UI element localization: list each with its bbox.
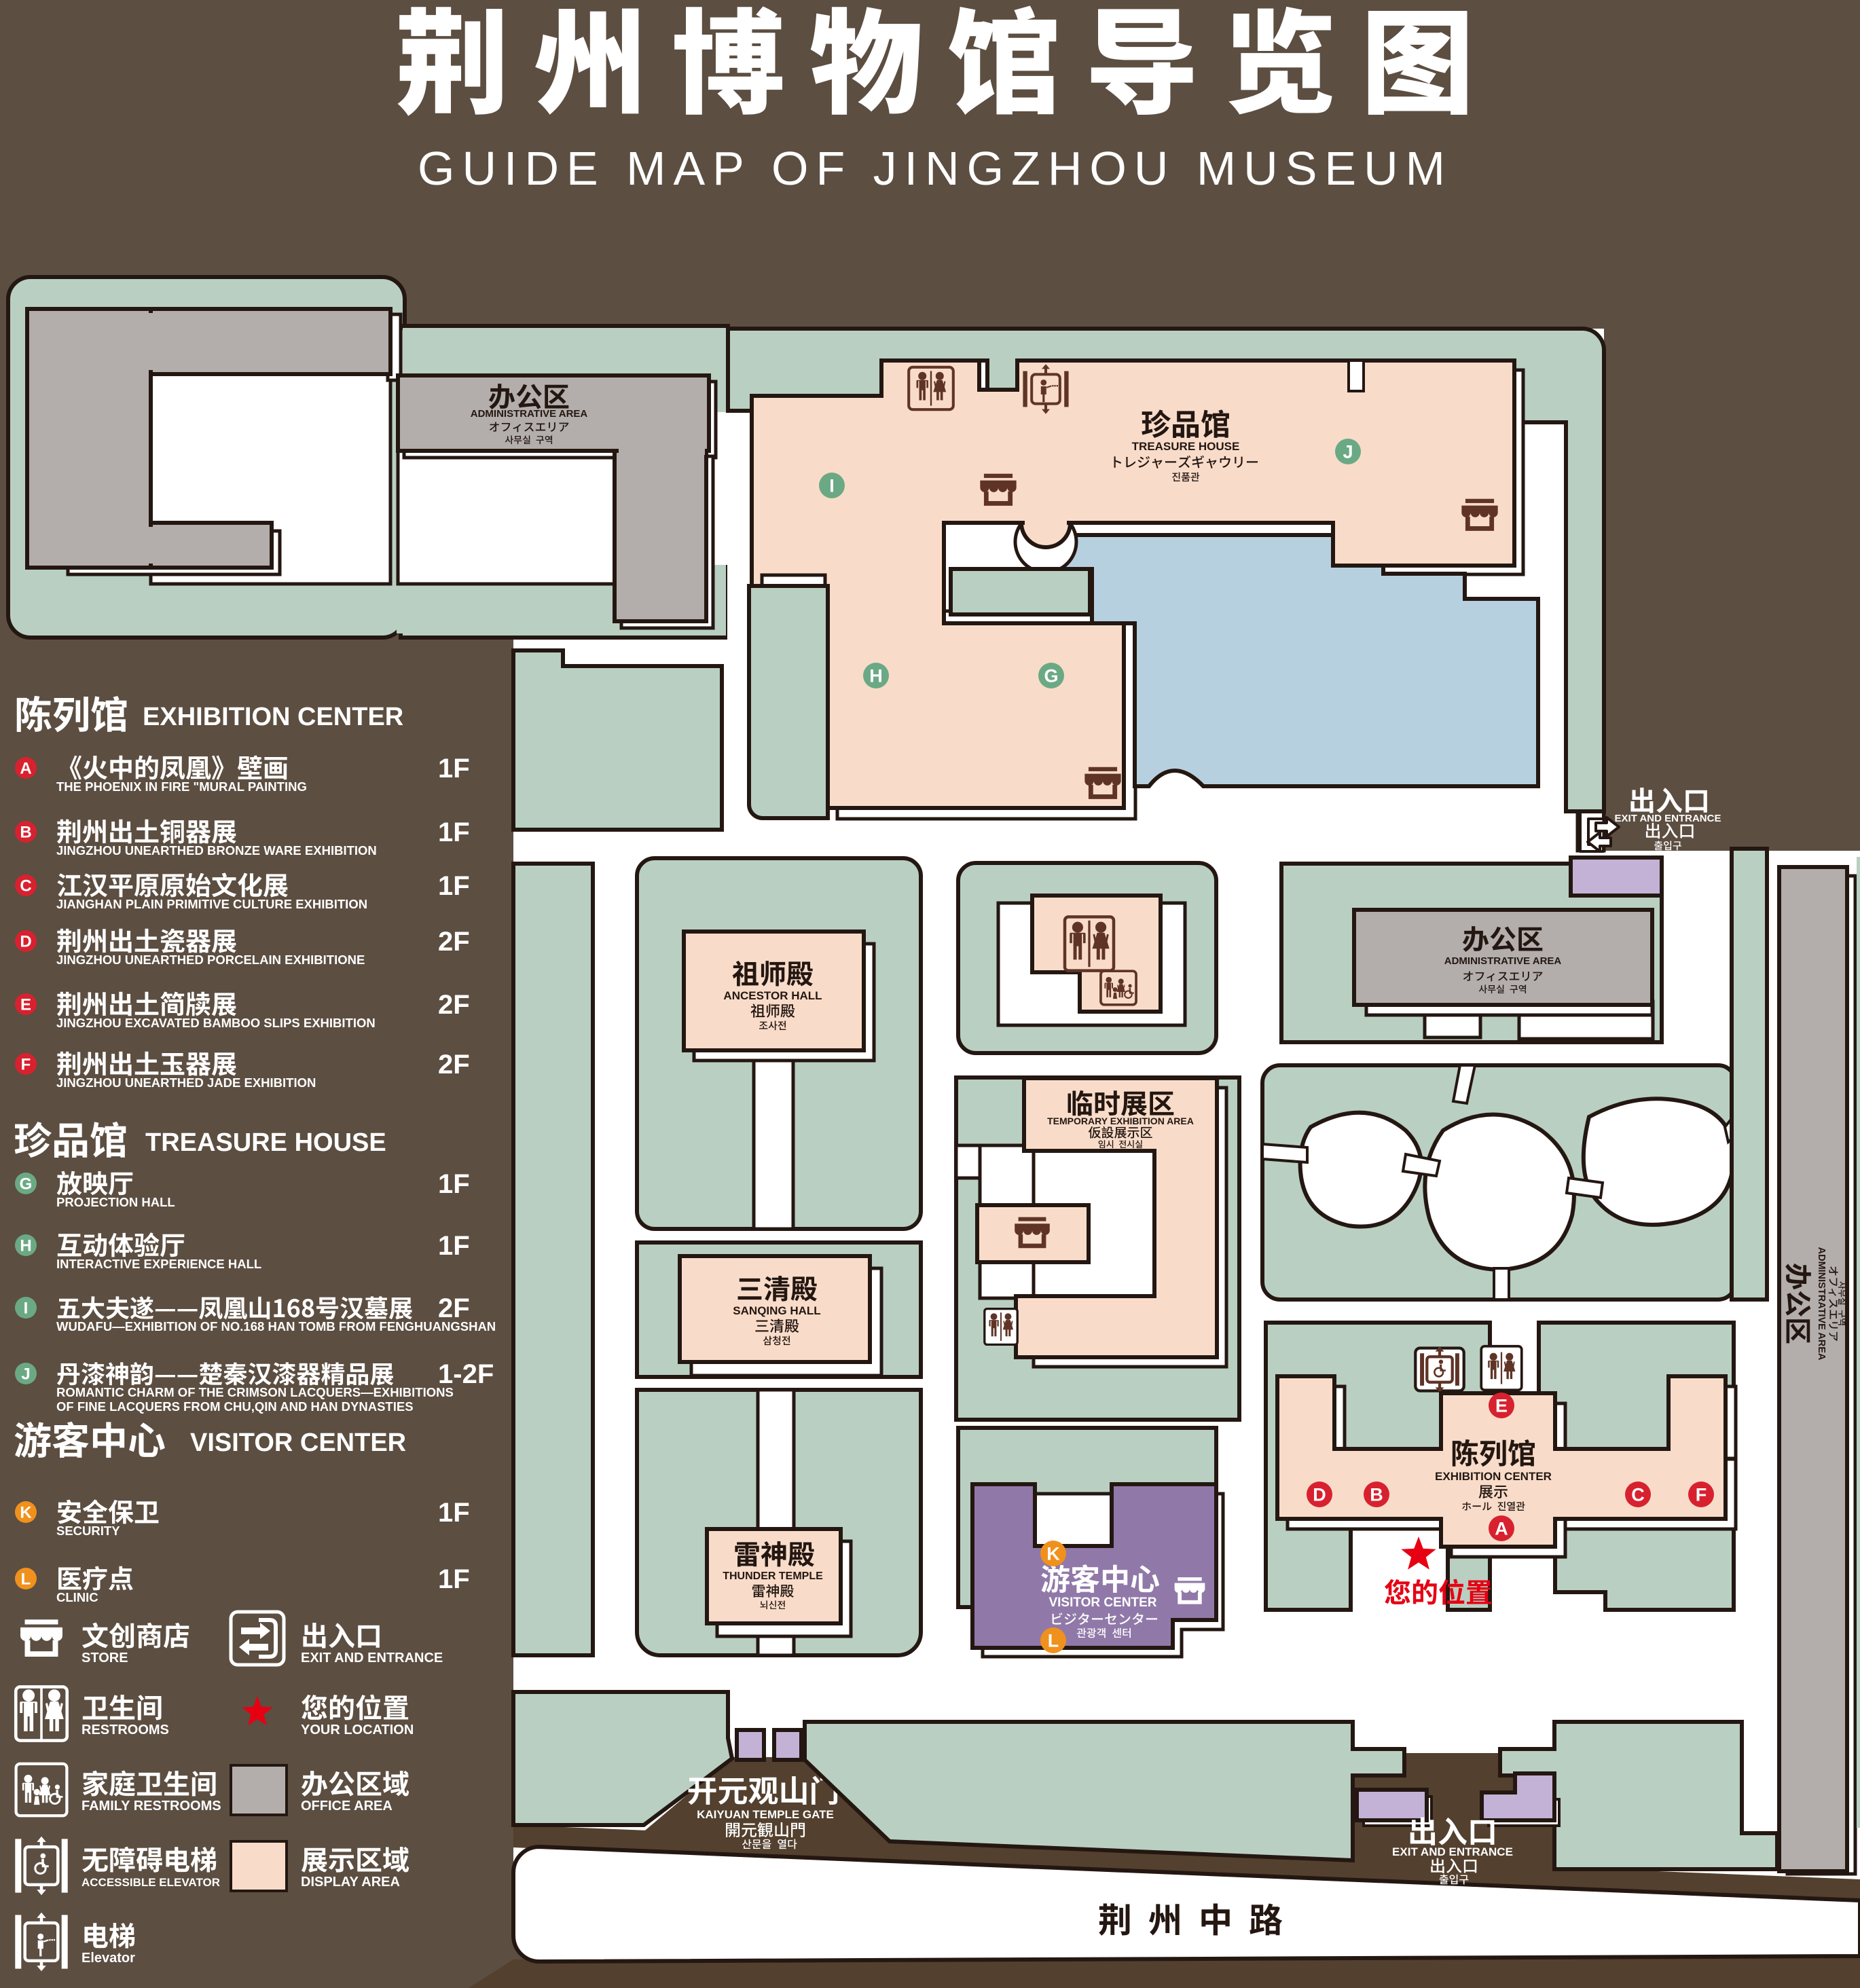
svg-text:WUDAFU—EXHIBITION OF NO.168 HA: WUDAFU—EXHIBITION OF NO.168 HAN TOMB FRO… <box>56 1319 496 1333</box>
svg-text:E: E <box>20 995 31 1014</box>
svg-text:1F: 1F <box>438 1231 470 1261</box>
svg-text:I: I <box>24 1299 29 1317</box>
svg-text:2F: 2F <box>438 927 470 957</box>
svg-text:SANQING HALL: SANQING HALL <box>733 1304 820 1317</box>
svg-text:J: J <box>1343 441 1353 462</box>
svg-text:ADMINISTRATIVE AREA: ADMINISTRATIVE AREA <box>1816 1247 1827 1361</box>
svg-text:L: L <box>21 1570 31 1588</box>
svg-text:L: L <box>1048 1630 1059 1651</box>
svg-text:C: C <box>1631 1484 1645 1505</box>
svg-text:OF FINE LACQUERS FROM CHU,QIN: OF FINE LACQUERS FROM CHU,QIN AND HAN DY… <box>56 1399 414 1414</box>
svg-text:2F: 2F <box>438 1293 470 1323</box>
svg-text:1F: 1F <box>438 754 470 784</box>
svg-text:TREASURE HOUSE: TREASURE HOUSE <box>145 1128 386 1157</box>
svg-text:A: A <box>20 759 31 777</box>
svg-text:TEMPORARY EXHIBITION AREA: TEMPORARY EXHIBITION AREA <box>1047 1116 1194 1126</box>
svg-text:B: B <box>20 823 31 841</box>
svg-text:K: K <box>1046 1543 1060 1564</box>
svg-text:K: K <box>20 1503 32 1522</box>
svg-text:THUNDER TEMPLE: THUNDER TEMPLE <box>723 1570 823 1582</box>
svg-text:VISITOR CENTER: VISITOR CENTER <box>190 1429 406 1457</box>
svg-text:H: H <box>869 665 883 686</box>
svg-text:YOUR LOCATION: YOUR LOCATION <box>301 1723 414 1737</box>
svg-text:G: G <box>1044 665 1058 686</box>
svg-text:D: D <box>20 932 31 951</box>
svg-text:2F: 2F <box>438 990 470 1020</box>
svg-text:F: F <box>1696 1484 1707 1505</box>
svg-text:J: J <box>21 1365 30 1383</box>
svg-text:INTERACTIVE EXPERIENCE HALL: INTERACTIVE EXPERIENCE HALL <box>56 1257 261 1271</box>
svg-text:CLINIC: CLINIC <box>56 1590 98 1604</box>
svg-text:PROJECTION HALL: PROJECTION HALL <box>56 1195 175 1209</box>
svg-text:1-2F: 1-2F <box>438 1359 494 1389</box>
svg-text:I: I <box>829 475 835 496</box>
svg-text:EXIT AND ENTRANCE: EXIT AND ENTRANCE <box>1392 1845 1513 1858</box>
svg-text:EXHIBITION CENTER: EXHIBITION CENTER <box>1435 1470 1552 1483</box>
svg-text:THE PHOENIX IN FIRE "MURAL PAI: THE PHOENIX IN FIRE "MURAL PAINTING <box>56 779 307 794</box>
svg-text:2F: 2F <box>438 1050 470 1080</box>
svg-text:KAIYUAN TEMPLE GATE: KAIYUAN TEMPLE GATE <box>697 1808 834 1821</box>
svg-text:ADMINISTRATIVE AREA: ADMINISTRATIVE AREA <box>1444 955 1562 967</box>
svg-text:TREASURE HOUSE: TREASURE HOUSE <box>1132 440 1240 453</box>
svg-text:Elevator: Elevator <box>81 1951 135 1966</box>
svg-text:F: F <box>21 1055 31 1073</box>
svg-text:E: E <box>1495 1395 1508 1416</box>
svg-text:VISITOR CENTER: VISITOR CENTER <box>1048 1596 1156 1610</box>
svg-text:ACCESSIBLE ELEVATOR: ACCESSIBLE ELEVATOR <box>81 1876 220 1889</box>
svg-text:EXIT AND ENTRANCE: EXIT AND ENTRANCE <box>301 1651 443 1665</box>
svg-text:1F: 1F <box>438 871 470 901</box>
svg-text:D: D <box>1313 1484 1326 1505</box>
svg-text:JINGZHOU UNEARTHED PORCELAIN E: JINGZHOU UNEARTHED PORCELAIN EXHIBITIONE <box>56 953 365 967</box>
svg-text:JINGZHOU UNEARTHED BRONZE WARE: JINGZHOU UNEARTHED BRONZE WARE EXHIBITIO… <box>56 843 377 858</box>
svg-text:B: B <box>1370 1484 1383 1505</box>
svg-text:ROMANTIC CHARM OF THE CRIMSON: ROMANTIC CHARM OF THE CRIMSON LACQUERS—E… <box>56 1385 454 1399</box>
svg-text:1F: 1F <box>438 817 470 847</box>
svg-text:G: G <box>20 1175 33 1193</box>
svg-text:A: A <box>1495 1518 1508 1539</box>
svg-text:ADMINISTRATIVE AREA: ADMINISTRATIVE AREA <box>471 408 588 420</box>
svg-text:JINGZHOU UNEARTHED JADE EXHIBI: JINGZHOU UNEARTHED JADE EXHIBITION <box>56 1075 316 1090</box>
svg-text:GUIDE MAP OF JINGZHOU MUSEUM: GUIDE MAP OF JINGZHOU MUSEUM <box>418 142 1453 195</box>
svg-text:EXIT AND ENTRANCE: EXIT AND ENTRANCE <box>1615 813 1721 824</box>
svg-text:FAMILY RESTROOMS: FAMILY RESTROOMS <box>81 1799 221 1814</box>
svg-text:DISPLAY AREA: DISPLAY AREA <box>301 1875 400 1890</box>
svg-text:C: C <box>20 877 31 895</box>
svg-text:RESTROOMS: RESTROOMS <box>81 1723 169 1737</box>
svg-text:EXHIBITION CENTER: EXHIBITION CENTER <box>143 703 403 731</box>
svg-text:OFFICE AREA: OFFICE AREA <box>301 1799 393 1814</box>
svg-text:SECURITY: SECURITY <box>56 1524 120 1538</box>
svg-text:1F: 1F <box>438 1169 470 1199</box>
svg-text:1F: 1F <box>438 1498 470 1528</box>
svg-text:JIANGHAN PLAIN PRIMITIVE CULTU: JIANGHAN PLAIN PRIMITIVE CULTURE EXHIBIT… <box>56 897 367 911</box>
svg-text:JINGZHOU EXCAVATED BAMBOO SLIP: JINGZHOU EXCAVATED BAMBOO SLIPS EXHIBITI… <box>56 1016 376 1030</box>
svg-text:1F: 1F <box>438 1564 470 1594</box>
svg-text:STORE: STORE <box>81 1651 128 1665</box>
svg-text:ANCESTOR HALL: ANCESTOR HALL <box>723 989 822 1002</box>
svg-text:H: H <box>20 1236 31 1255</box>
